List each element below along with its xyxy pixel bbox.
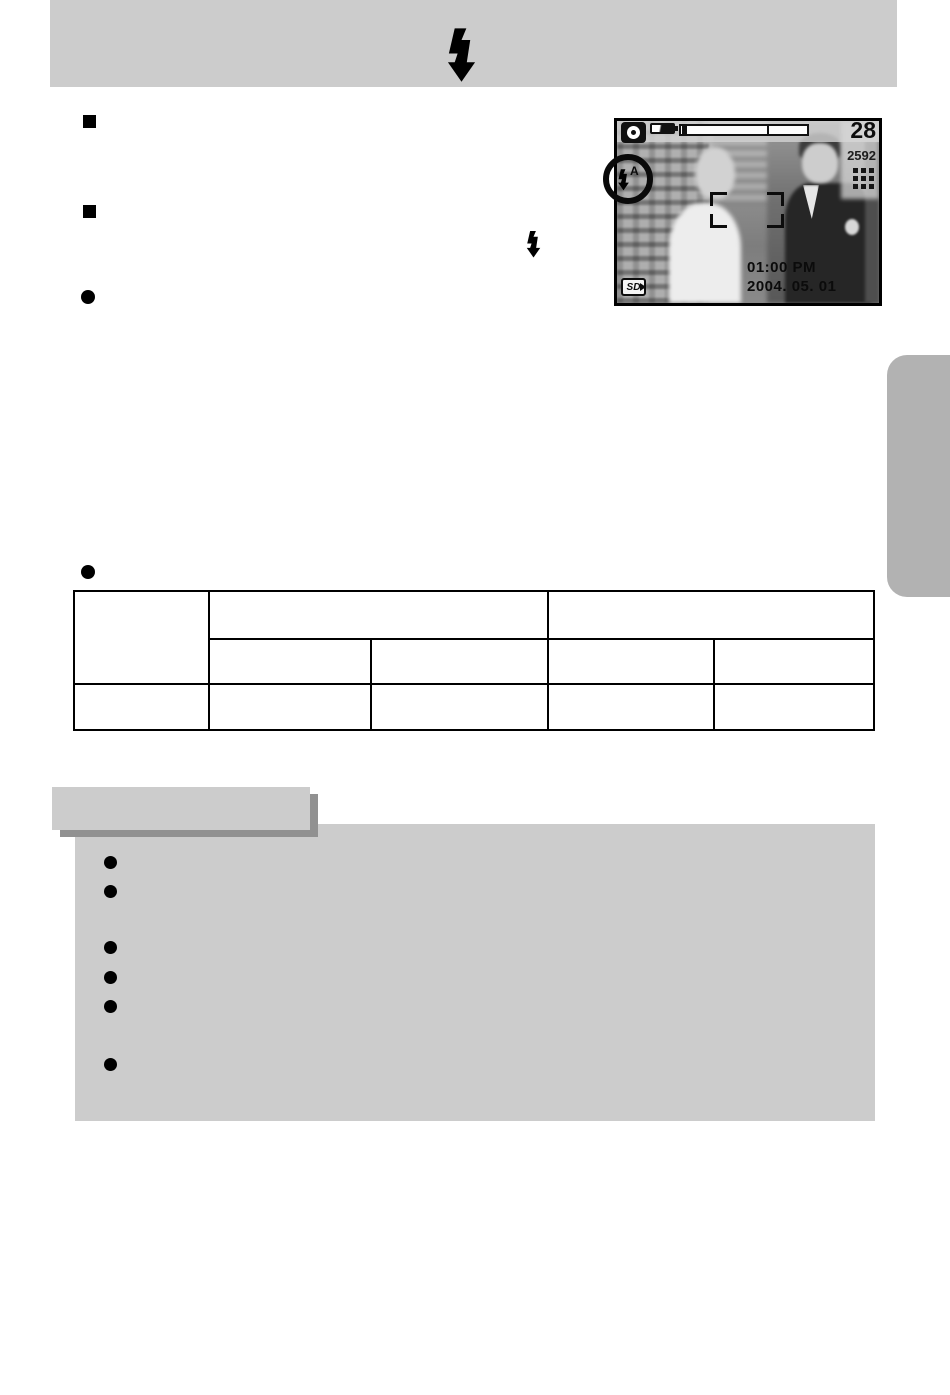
table-rule [208,592,210,729]
zoom-bar [679,124,809,136]
flash-range-table [73,590,875,731]
inline-flash-bolt-icon [525,231,542,258]
information-box [75,824,875,1121]
camera-mode-icon [621,122,646,143]
list-bullet [104,885,117,898]
round-bullet [81,565,95,579]
camera-lens-icon [627,126,640,139]
manual-page: 28 2592 A 01:00 PM 2004. 05. 01 SD [0,0,950,1395]
photo-groom [802,143,838,183]
table-rule [547,592,549,729]
battery-icon [650,123,675,134]
list-bullet [104,1058,117,1071]
page-header-bar [50,0,897,87]
zoom-bar-divider [767,126,769,134]
square-bullet [83,205,96,218]
list-bullet [104,941,117,954]
table-rule [208,638,873,640]
zoom-position-marker [682,126,687,134]
list-bullet [104,1000,117,1013]
list-bullet [104,971,117,984]
shots-remaining: 28 [850,117,876,144]
flash-auto-indicator: A [603,154,653,204]
information-tab [52,787,310,830]
lcd-screen-illustration: 28 2592 A 01:00 PM 2004. 05. 01 SD [614,118,882,306]
quality-dots-icon [853,168,874,189]
flash-auto-letter: A [630,164,639,178]
battery-fill [652,125,673,132]
lcd-date: 2004. 05. 01 [747,278,836,295]
sd-card-icon: SD [621,278,646,296]
flash-bolt-icon [617,169,630,191]
chapter-side-tab [887,355,950,597]
list-bullet [104,856,117,869]
photo-boutonniere [845,219,859,235]
lcd-time: 01:00 PM [747,259,816,276]
focus-frame [710,192,784,228]
table-rule [75,683,873,685]
round-bullet [81,290,95,304]
flash-bolt-icon [445,28,478,83]
square-bullet [83,115,96,128]
resolution-value: 2592 [847,148,876,163]
